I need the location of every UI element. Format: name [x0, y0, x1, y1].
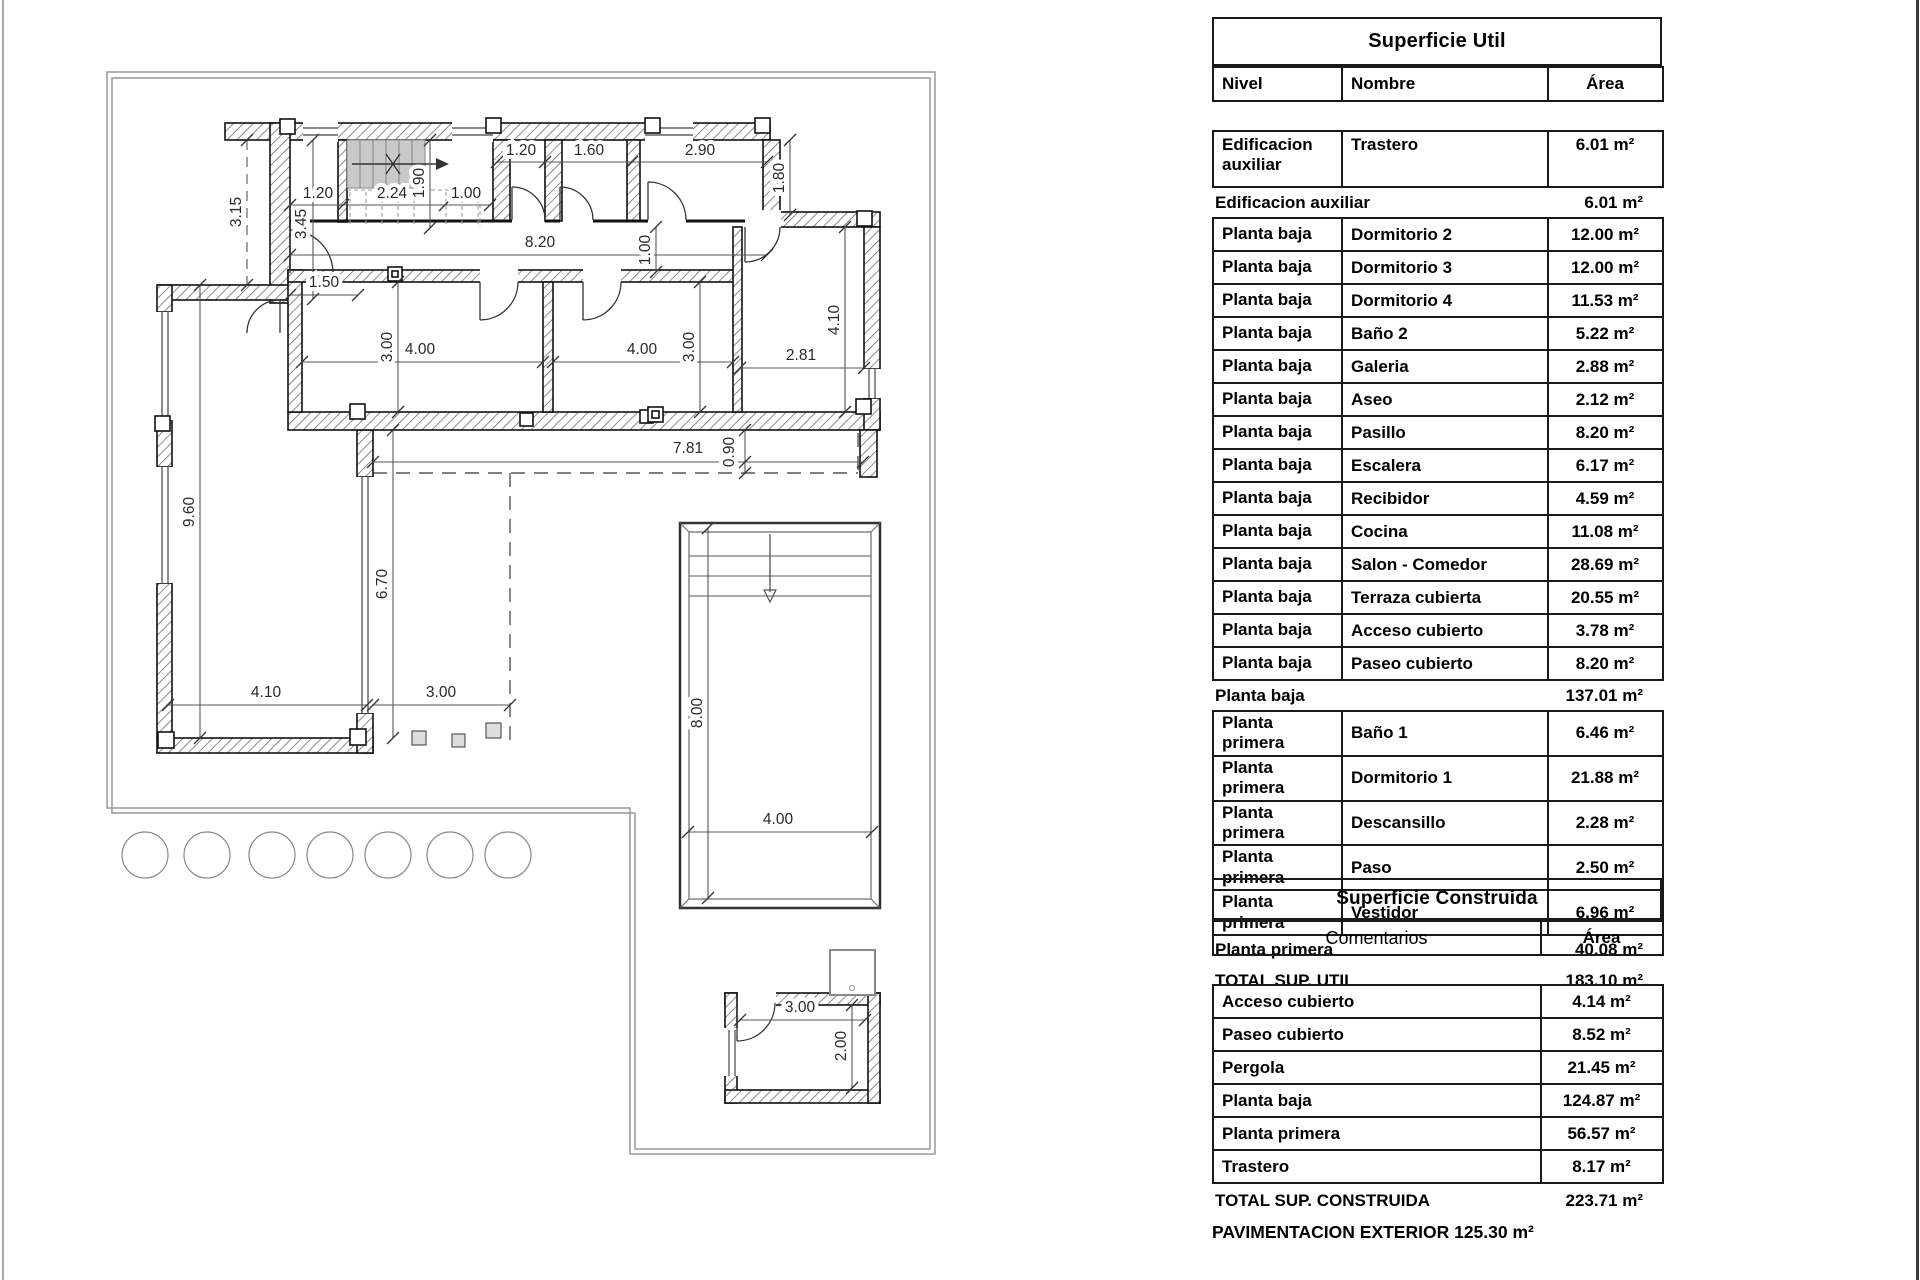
table-row: Planta bajaSalon - Comedor28.69 m²	[1213, 548, 1663, 581]
table-row: Edificacion auxiliarTrastero6.01 m²	[1213, 131, 1663, 187]
dimension-label: 2.81	[786, 347, 816, 364]
dimension-label: 3.00	[379, 332, 396, 363]
column-header-area: Área	[1548, 67, 1663, 101]
tree-circles	[122, 832, 531, 878]
dimension-label: 3.00	[681, 332, 698, 363]
table-row: Planta bajaDormitorio 411.53 m²	[1213, 284, 1663, 317]
table-body: Acceso cubierto4.14 m²Paseo cubierto8.52…	[1212, 984, 1664, 1217]
table-row: Planta bajaRecibidor4.59 m²	[1213, 482, 1663, 515]
table-header: Nivel Nombre Área	[1212, 66, 1664, 102]
table-row: Planta bajaGaleria2.88 m²	[1213, 350, 1663, 383]
dimension-label: 2.90	[685, 142, 716, 159]
freestanding-pillars	[412, 723, 501, 747]
table-row: Planta bajaEscalera6.17 m²	[1213, 449, 1663, 482]
table-row: Planta bajaPasillo8.20 m²	[1213, 416, 1663, 449]
dimension-label: 1.00	[637, 235, 654, 266]
table-row: Planta bajaDormitorio 212.00 m²	[1213, 218, 1663, 251]
table-row: Planta primera56.57 m²	[1213, 1117, 1663, 1150]
dimension-label: 7.81	[673, 440, 703, 457]
dimension-label: 1.60	[574, 142, 605, 159]
table-title: Superficie Util	[1212, 17, 1662, 66]
dimension-label: 4.10	[826, 305, 843, 336]
dimension-label: 3.45	[293, 209, 310, 239]
table-row: Planta bajaAseo2.12 m²	[1213, 383, 1663, 416]
table-row: Planta bajaTerraza cubierta20.55 m²	[1213, 581, 1663, 614]
dimension-label: 4.00	[763, 811, 794, 828]
dimension-label: 4.00	[405, 341, 436, 358]
superficie-util-table: Superficie Util Nivel Nombre Área Edific…	[1212, 17, 1662, 998]
column-header-nombre: Nombre	[1342, 67, 1548, 101]
dimension-label: 0.90	[721, 437, 738, 468]
dimension-label: 2.24	[377, 185, 408, 202]
table-row: Planta bajaCocina11.08 m²	[1213, 515, 1663, 548]
table-row: Planta primeraDormitorio 121.88 m²	[1213, 756, 1663, 801]
outdoor-shower	[830, 950, 875, 995]
dimension-label: 1.50	[309, 274, 340, 291]
table-row: Planta bajaPaseo cubierto8.20 m²	[1213, 647, 1663, 680]
table-row: TOTAL SUP. CONSTRUIDA223.71 m²	[1213, 1183, 1663, 1217]
dimension-label: 6.70	[374, 569, 391, 600]
dimension-label: 3.15	[228, 197, 245, 227]
dimension-label: 1.80	[771, 163, 788, 194]
swimming-pool	[680, 523, 880, 908]
dimension-label: 8.20	[525, 234, 556, 251]
table-row: Trastero8.17 m²	[1213, 1150, 1663, 1183]
table-row: Planta primeraDescansillo2.28 m²	[1213, 801, 1663, 846]
dimension-label: 1.20	[506, 142, 537, 159]
table-row: Acceso cubierto4.14 m²	[1213, 985, 1663, 1018]
dimension-label: 8.00	[689, 698, 706, 729]
dimension-label: 3.00	[785, 999, 816, 1016]
dimension-label: 1.00	[451, 185, 482, 202]
dimension-label: 1.20	[303, 185, 334, 202]
table-row: Edificacion auxiliar6.01 m²	[1213, 187, 1663, 218]
superficie-construida-table: Superficie Construida Comentarios Área A…	[1212, 878, 1662, 1217]
dimension-label: 1.90	[411, 168, 428, 199]
table-row: Planta bajaDormitorio 312.00 m²	[1213, 251, 1663, 284]
column-header-area: Área	[1541, 921, 1663, 955]
table-body: Edificacion auxiliarTrastero6.01 m²Edifi…	[1212, 130, 1664, 998]
table-title: Superficie Construida	[1212, 878, 1662, 920]
column-header-nivel: Nivel	[1213, 67, 1342, 101]
dimension-label: 2.00	[833, 1031, 850, 1062]
dimension-label: 9.60	[181, 497, 198, 528]
table-header: Comentarios Área	[1212, 920, 1664, 956]
table-row: Planta bajaBaño 25.22 m²	[1213, 317, 1663, 350]
table-row: Paseo cubierto8.52 m²	[1213, 1018, 1663, 1051]
table-row: Planta baja137.01 m²	[1213, 680, 1663, 711]
table-row: Planta bajaAcceso cubierto3.78 m²	[1213, 614, 1663, 647]
table-row: Pergola21.45 m²	[1213, 1051, 1663, 1084]
pavimentacion-note: PAVIMENTACION EXTERIOR 125.30 m²	[1212, 1222, 1534, 1243]
dimension-label: 3.00	[426, 684, 457, 701]
dimension-label: 4.10	[251, 684, 282, 701]
table-row: Planta primeraBaño 16.46 m²	[1213, 711, 1663, 756]
table-row: Planta baja124.87 m²	[1213, 1084, 1663, 1117]
dimension-label: 4.00	[627, 341, 658, 358]
column-header-comentarios: Comentarios	[1213, 921, 1541, 955]
